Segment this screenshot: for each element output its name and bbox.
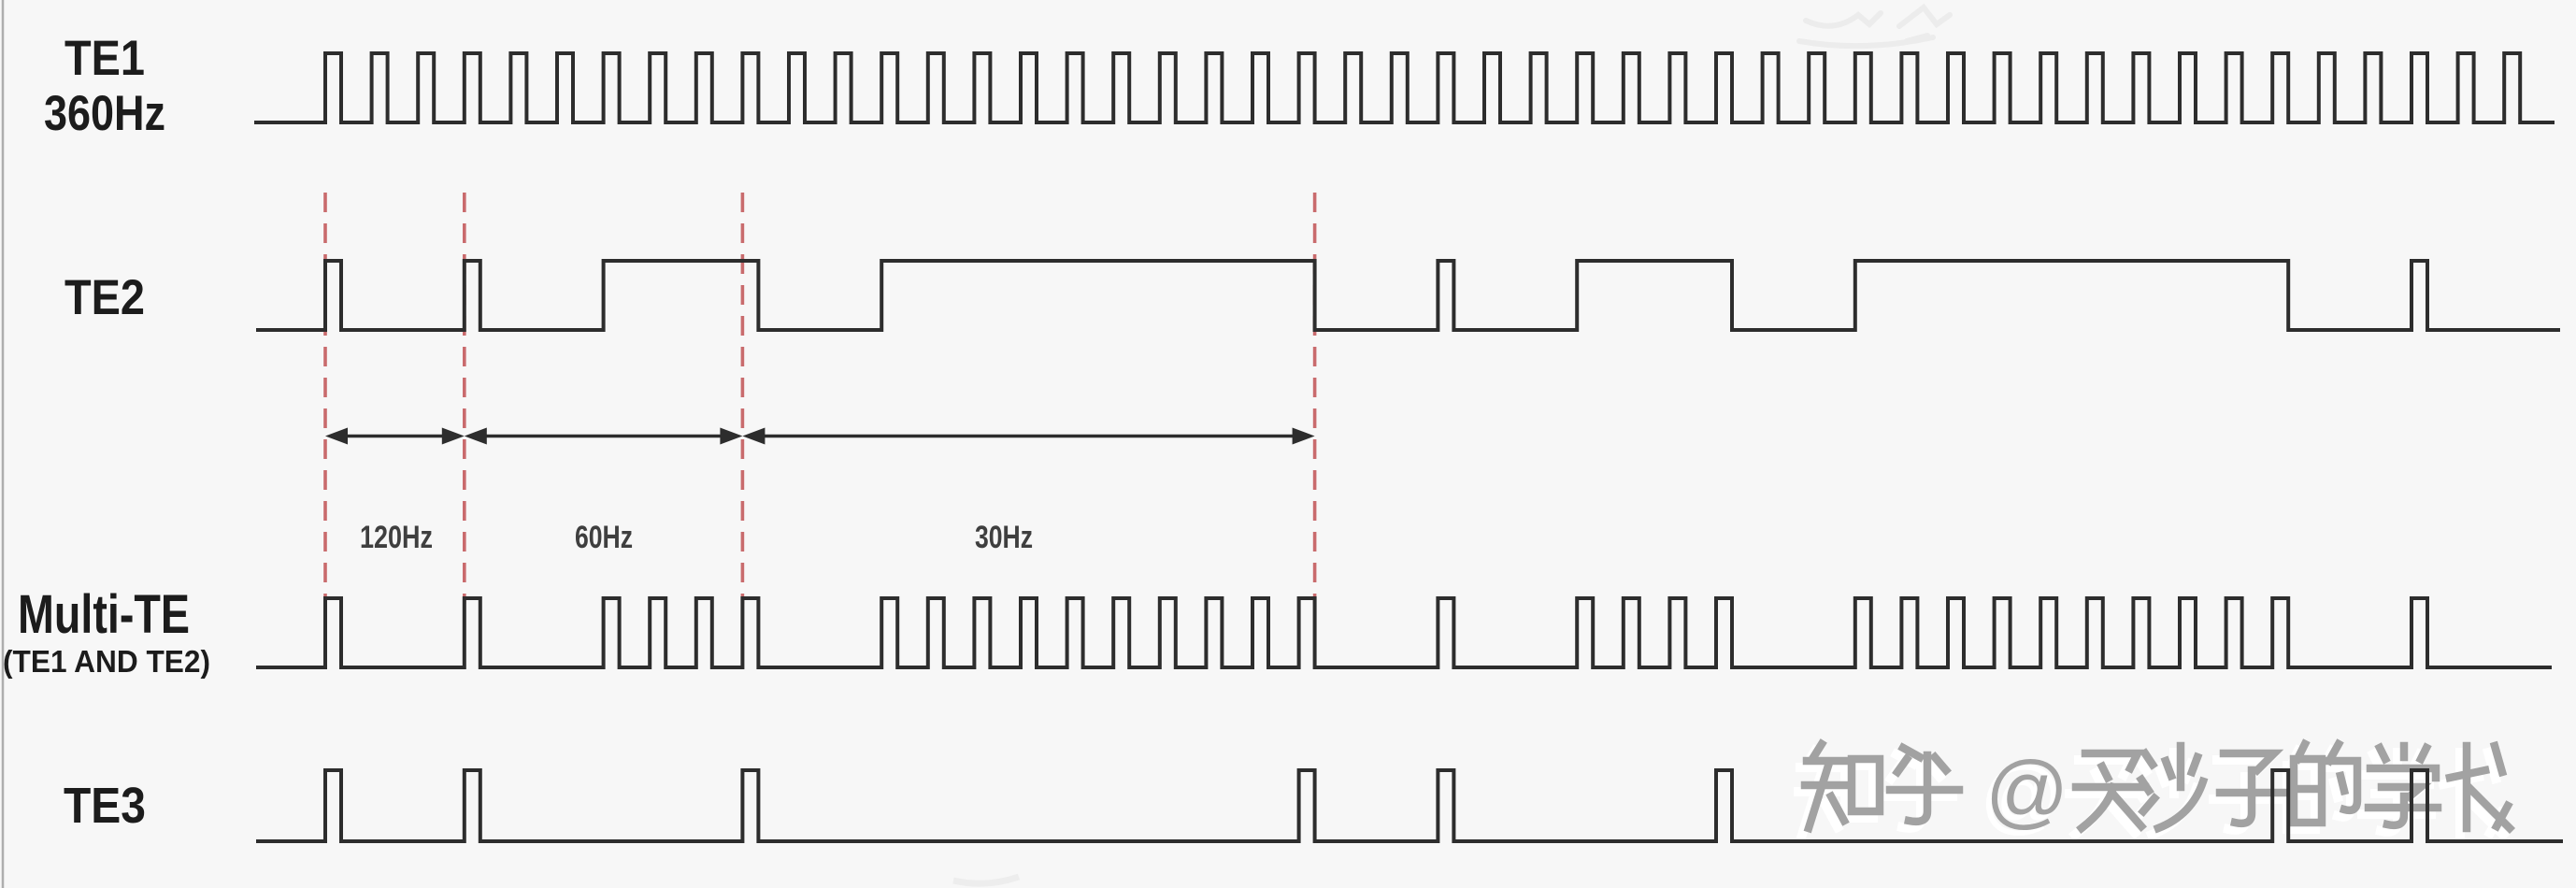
svg-text:TE2: TE2 [64, 270, 145, 325]
svg-text:(TE1 AND TE2): (TE1 AND TE2) [3, 645, 210, 680]
svg-text:@: @ [1985, 744, 2068, 837]
svg-text:360Hz: 360Hz [44, 86, 165, 141]
svg-text:TE1: TE1 [64, 31, 145, 86]
svg-text:30Hz: 30Hz [975, 520, 1033, 555]
svg-text:120Hz: 120Hz [360, 520, 433, 555]
svg-text:Multi-TE: Multi-TE [18, 584, 190, 645]
svg-text:60Hz: 60Hz [575, 520, 633, 555]
svg-text:TE3: TE3 [64, 778, 146, 834]
